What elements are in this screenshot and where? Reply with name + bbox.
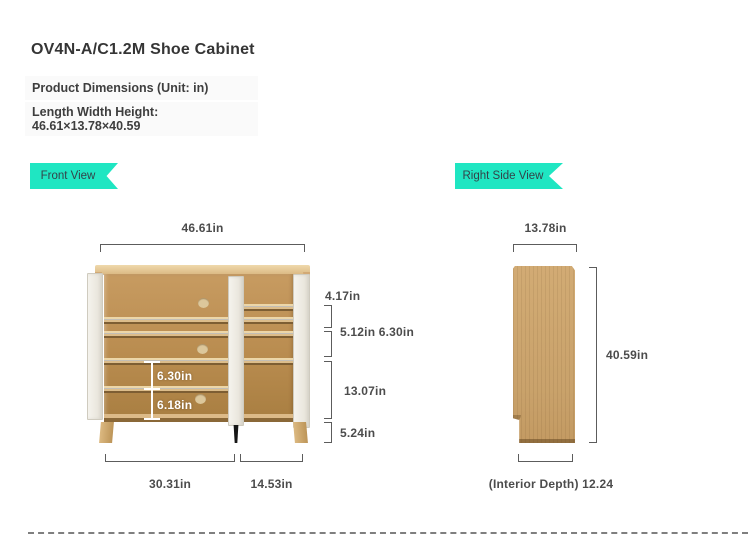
vent-hole xyxy=(198,298,209,308)
cabinet-body xyxy=(104,274,294,422)
cabinet-leg-right xyxy=(293,422,308,443)
front-top-width-bracket xyxy=(100,244,305,252)
front-seg-row-dim: 5.12in 6.30in xyxy=(340,325,414,339)
side-height-dim: 40.59in xyxy=(606,348,648,362)
side-panel xyxy=(513,266,575,443)
cabinet-right-compartment xyxy=(244,274,294,422)
right-side-view-badge: Right Side View xyxy=(455,163,563,189)
shelf xyxy=(104,331,228,338)
shelf xyxy=(104,317,228,324)
shelf xyxy=(244,358,294,365)
side-depth-bracket xyxy=(518,454,573,462)
side-panel-bottom-edge xyxy=(519,439,575,443)
shelf xyxy=(244,331,294,338)
front-bottom-right-bracket xyxy=(240,454,303,462)
front-seg-bottom-bracket xyxy=(324,422,332,443)
cabinet-door-middle-open xyxy=(228,276,244,426)
shelf xyxy=(244,317,294,324)
size-note: Length Width Height: 46.61×13.78×40.59 xyxy=(25,102,258,136)
front-seg-bottom-dim: 5.24in xyxy=(340,426,375,440)
dashed-divider xyxy=(28,532,748,534)
cabinet-leg-center xyxy=(233,425,239,443)
cabinet-door-left-open xyxy=(87,273,103,420)
front-bottom-left-bracket xyxy=(105,454,235,462)
front-seg-top-dim: 4.17in xyxy=(325,289,360,303)
unit-note-text: Product Dimensions (Unit: in) xyxy=(25,76,258,100)
page-title: OV4N-A/C1.2M Shoe Cabinet xyxy=(31,41,255,59)
cabinet-door-right-open xyxy=(293,274,310,428)
cabinet-leg-left xyxy=(99,422,114,443)
size-label: Length Width Height: xyxy=(25,102,258,119)
shelf xyxy=(244,304,294,311)
front-seg-mid-bracket xyxy=(324,361,332,419)
side-interior-depth-dim: (Interior Depth) 12.24 xyxy=(471,477,631,491)
front-seg-top-bracket xyxy=(324,305,332,328)
cabinet-top-panel xyxy=(95,265,310,274)
interior-dim-tick xyxy=(144,388,160,390)
shelf xyxy=(104,358,228,365)
front-bottom-left-dim: 30.31in xyxy=(105,477,235,491)
front-seg-row-bracket xyxy=(324,331,332,357)
unit-note: Product Dimensions (Unit: in) xyxy=(25,76,258,100)
vent-hole xyxy=(195,394,206,404)
cabinet-floor xyxy=(244,414,294,422)
front-top-width-dim: 46.61in xyxy=(100,221,305,235)
product-dimension-sheet: OV4N-A/C1.2M Shoe Cabinet Product Dimens… xyxy=(0,0,750,555)
vent-hole xyxy=(197,344,208,354)
side-top-width-dim: 13.78in xyxy=(508,221,583,235)
front-view-badge: Front View xyxy=(30,163,118,189)
interior-lower-dim: 6.18in xyxy=(157,398,192,412)
interior-dim-line xyxy=(151,362,153,420)
side-height-bracket xyxy=(589,267,597,443)
cabinet-floor xyxy=(104,414,228,422)
size-value: 46.61×13.78×40.59 xyxy=(25,119,258,133)
interior-dim-tick xyxy=(144,418,160,420)
side-top-width-bracket xyxy=(513,244,577,252)
shelf xyxy=(104,386,228,393)
front-bottom-right-dim: 14.53in xyxy=(240,477,303,491)
interior-dim-tick xyxy=(144,361,160,363)
front-seg-mid-dim: 13.07in xyxy=(344,384,386,398)
side-panel-notch xyxy=(513,415,521,421)
interior-upper-dim: 6.30in xyxy=(157,369,192,383)
